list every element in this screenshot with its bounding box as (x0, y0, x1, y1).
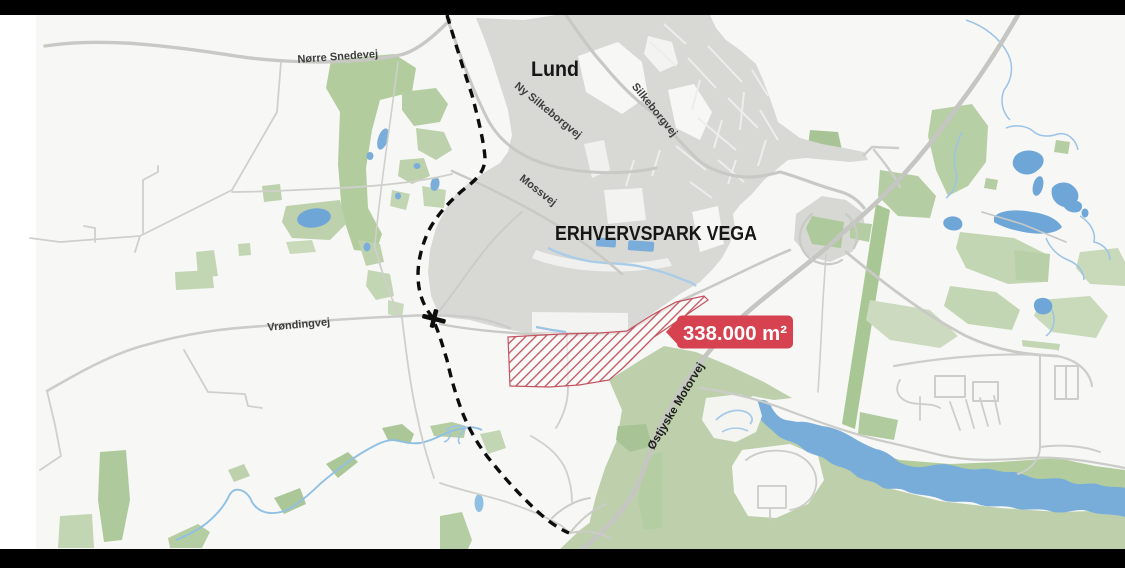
svg-text:ERHVERVSPARK VEGA: ERHVERVSPARK VEGA (555, 223, 757, 245)
svg-text:Lund: Lund (531, 58, 579, 81)
svg-text:338.000 m²: 338.000 m² (683, 323, 787, 345)
